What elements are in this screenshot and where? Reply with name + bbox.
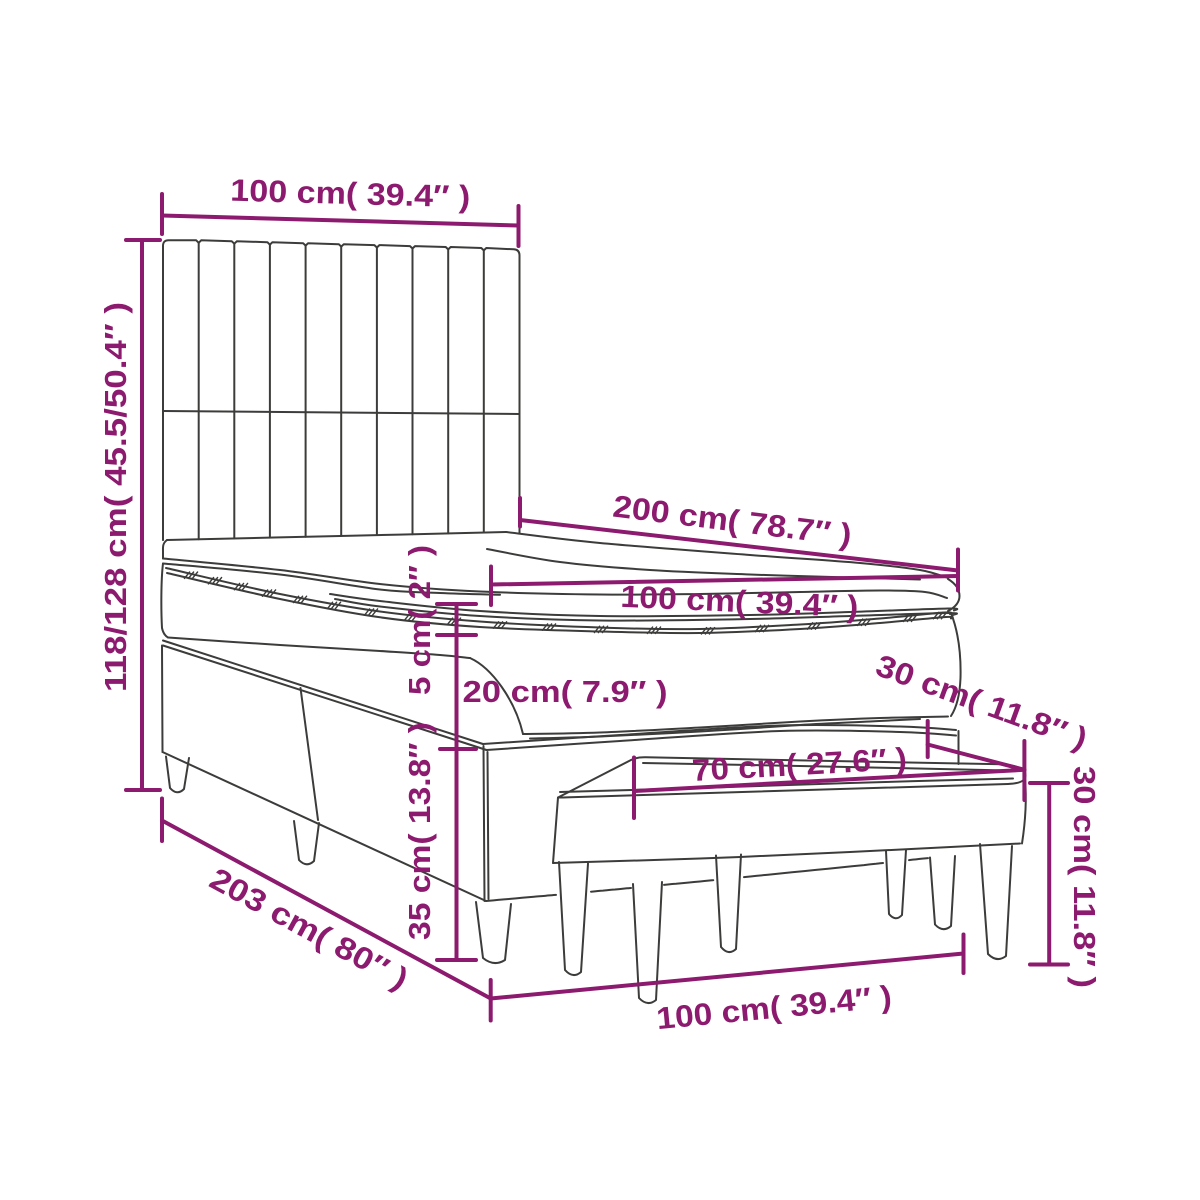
svg-text:5 cm( 2″ ): 5 cm( 2″ ) <box>402 545 437 695</box>
svg-text:35 cm( 13.8″ ): 35 cm( 13.8″ ) <box>402 722 437 940</box>
svg-text:20 cm( 7.9″ ): 20 cm( 7.9″ ) <box>463 674 668 709</box>
svg-text:30 cm( 11.8″ ): 30 cm( 11.8″ ) <box>1067 766 1102 988</box>
svg-text:118/128 cm( 45.5/50.4″ ): 118/128 cm( 45.5/50.4″ ) <box>98 302 133 692</box>
svg-text:100 cm( 39.4″ ): 100 cm( 39.4″ ) <box>230 173 471 215</box>
